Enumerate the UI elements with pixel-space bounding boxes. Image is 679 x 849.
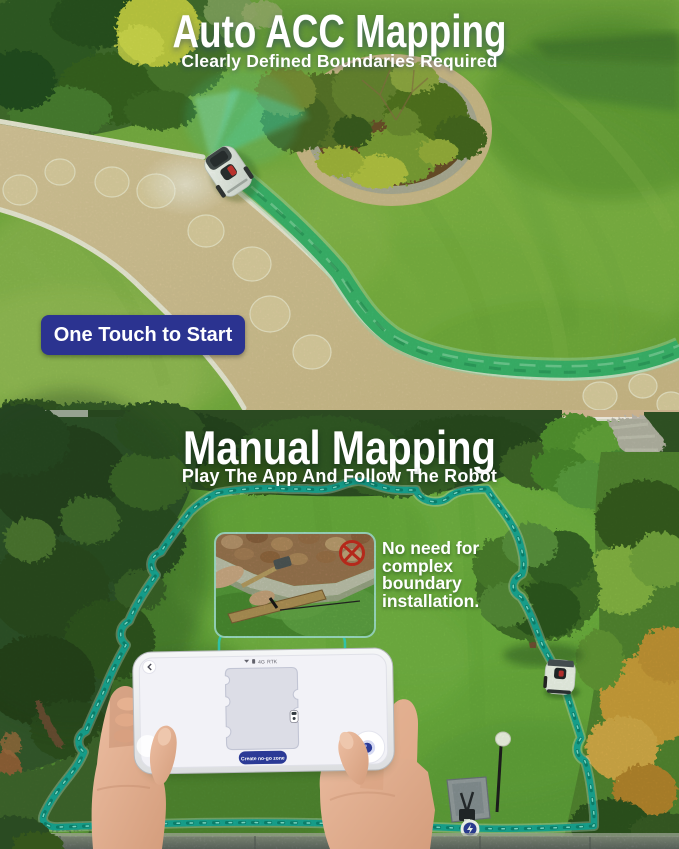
svg-text:Create no-go zone: Create no-go zone [241,756,285,763]
svg-text:RTK: RTK [267,659,278,665]
svg-text:4G: 4G [258,659,265,665]
